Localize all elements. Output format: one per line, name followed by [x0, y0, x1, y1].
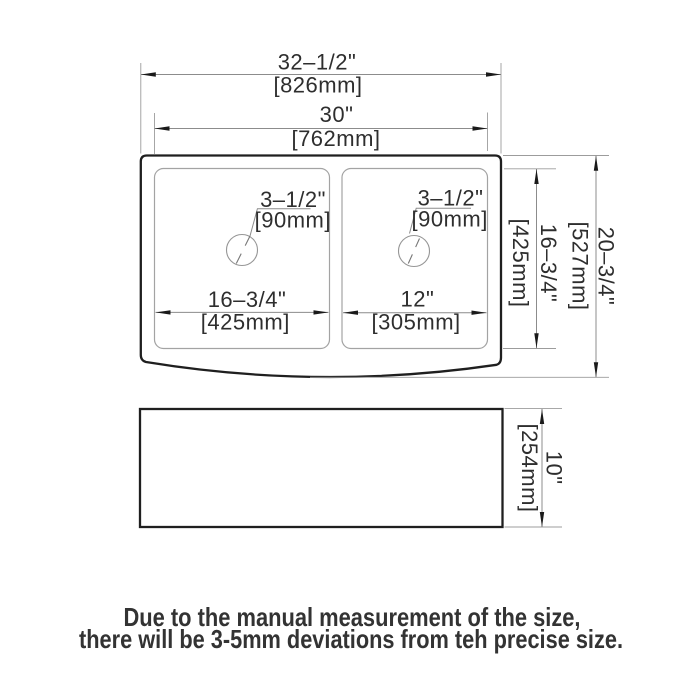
svg-text:[425mm]: [425mm]	[508, 218, 533, 307]
svg-text:30": 30"	[320, 102, 354, 127]
svg-text:[305mm]: [305mm]	[372, 310, 461, 335]
svg-text:12": 12"	[401, 287, 435, 312]
svg-text:[90mm]: [90mm]	[412, 207, 488, 232]
svg-text:16–3/4": 16–3/4"	[536, 224, 561, 303]
svg-text:[254mm]: [254mm]	[517, 423, 542, 512]
svg-text:16–3/4": 16–3/4"	[208, 287, 287, 312]
svg-text:[425mm]: [425mm]	[201, 310, 290, 335]
svg-text:10": 10"	[542, 451, 567, 485]
svg-text:20–3/4": 20–3/4"	[593, 227, 618, 306]
svg-text:[762mm]: [762mm]	[291, 126, 380, 151]
svg-text:[90mm]: [90mm]	[255, 208, 331, 233]
svg-text:[527mm]: [527mm]	[567, 221, 592, 310]
svg-text:32–1/2": 32–1/2"	[278, 50, 357, 75]
svg-text:[826mm]: [826mm]	[273, 73, 362, 98]
svg-text:there will be 3-5mm deviations: there will be 3-5mm deviations from teh …	[79, 624, 623, 654]
